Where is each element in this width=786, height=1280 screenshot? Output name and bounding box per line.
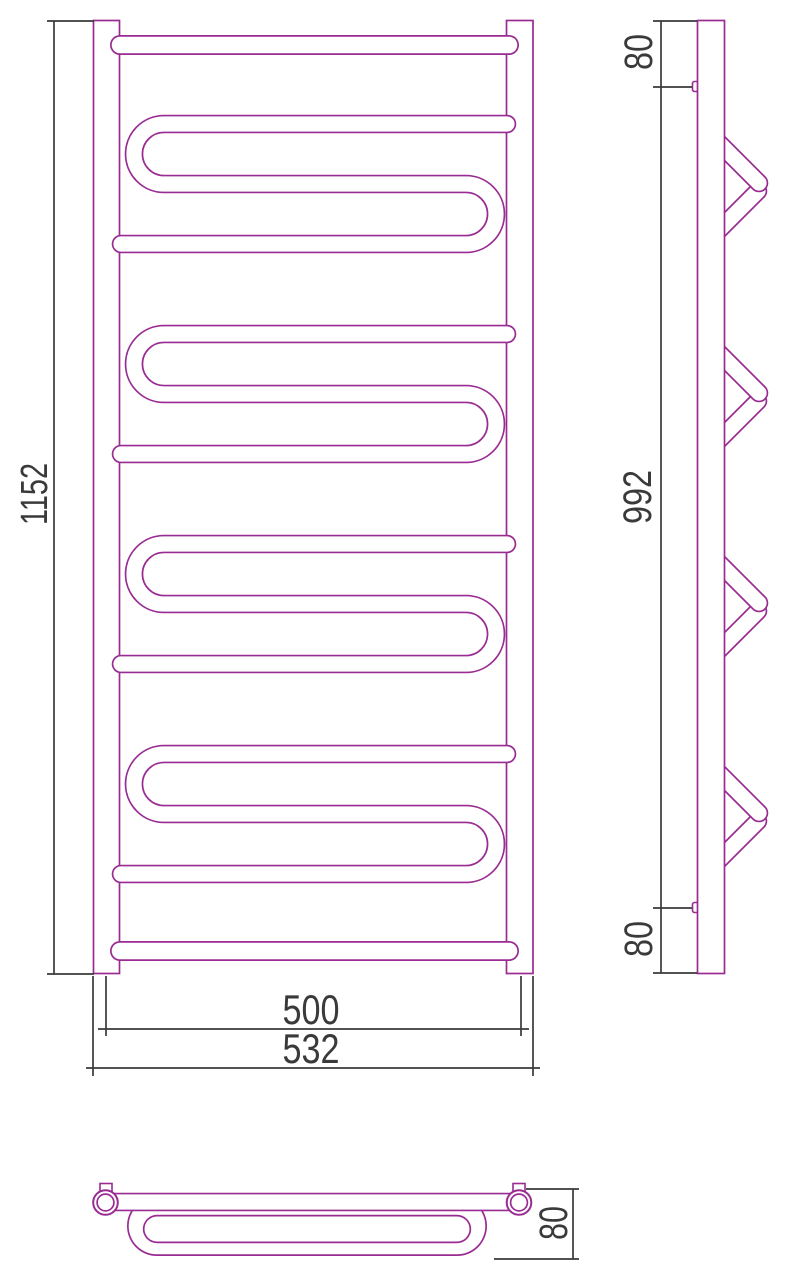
depth-dimension-label: 80 — [532, 1206, 576, 1240]
rail-side-profile — [698, 21, 725, 974]
left-rail-bore — [97, 1194, 114, 1211]
coil-loop-top — [157, 1226, 457, 1229]
side-view: 80 992 80 — [616, 21, 759, 974]
serpentine-coil-4 — [121, 754, 507, 874]
right-rail-bore — [511, 1194, 528, 1211]
towel-rail-drawing: 1152 500 532 80 992 80 — [0, 0, 786, 1280]
serpentine-coil-1 — [121, 124, 507, 244]
overall-width-dimension-label: 532 — [283, 1025, 340, 1072]
front-view: 1152 500 532 — [14, 21, 540, 1077]
mount-span-dimension-label: 992 — [616, 470, 660, 524]
technical-drawing-canvas: 1152 500 532 80 992 80 — [0, 0, 786, 1280]
bottom-offset-dimension-label: 80 — [617, 921, 661, 957]
serpentine-coil-2 — [121, 334, 507, 454]
top-view: 80 — [93, 1184, 579, 1260]
serpentine-coil-3 — [121, 544, 507, 664]
right-rail — [507, 21, 534, 974]
height-dimension-label: 1152 — [14, 463, 56, 525]
left-rail — [94, 21, 120, 974]
top-offset-dimension-label: 80 — [617, 34, 661, 70]
